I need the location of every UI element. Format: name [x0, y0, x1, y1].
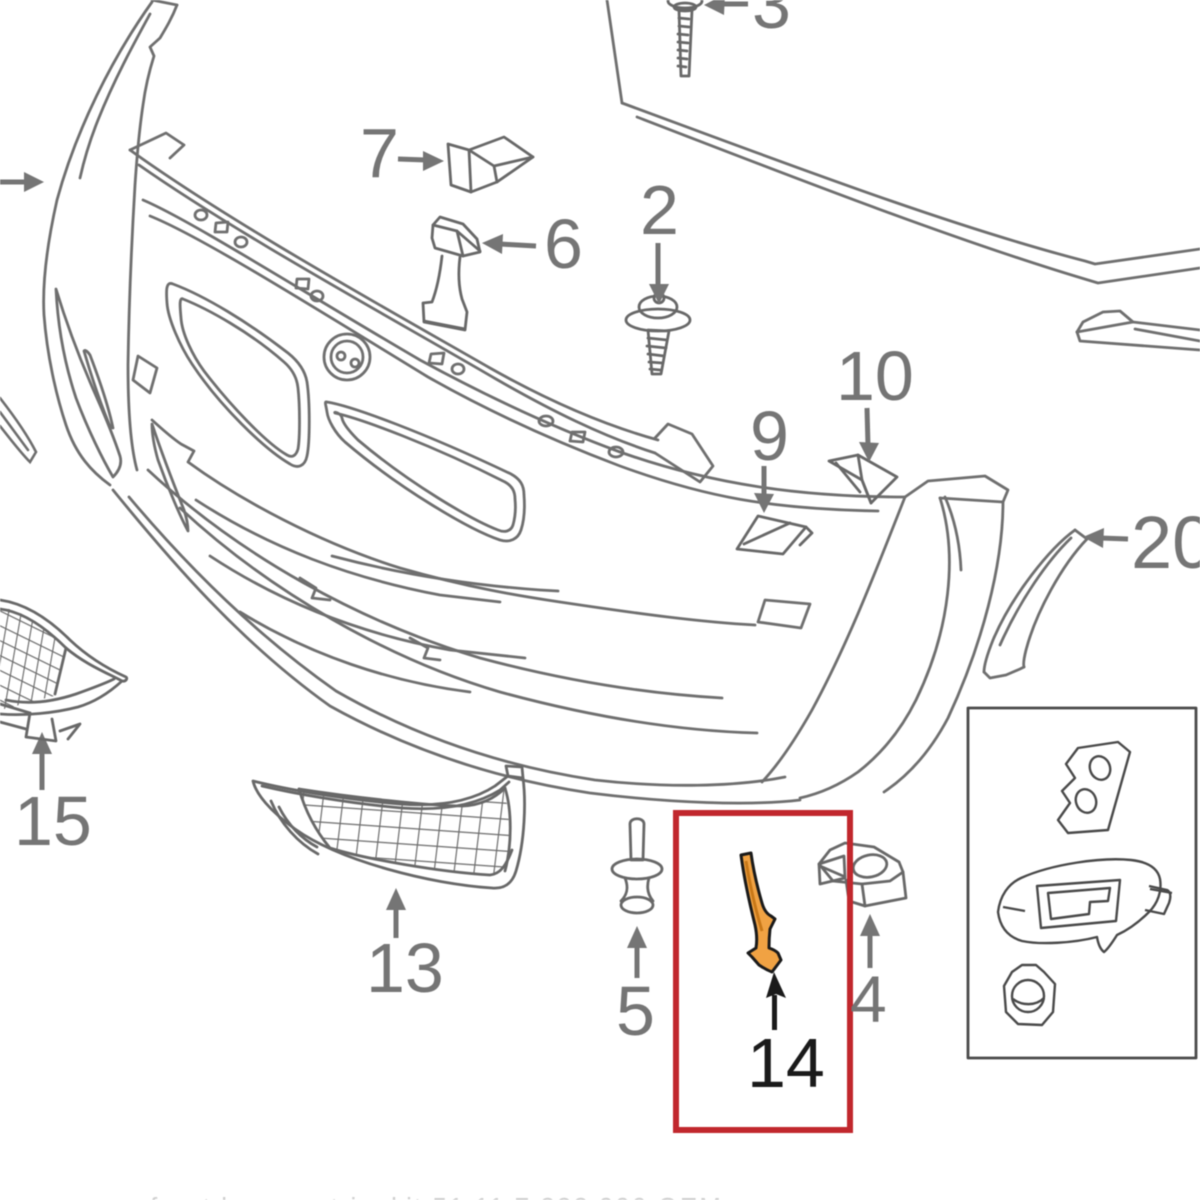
svg-text:13: 13: [366, 929, 444, 1007]
svg-text:6: 6: [544, 205, 583, 283]
svg-text:5: 5: [616, 972, 655, 1050]
svg-text:10: 10: [836, 337, 914, 415]
svg-text:7: 7: [360, 114, 399, 192]
svg-text:15: 15: [14, 782, 92, 860]
svg-text:3: 3: [752, 0, 791, 43]
svg-text:14: 14: [747, 1024, 825, 1102]
svg-text:front bumper trim kit 51 11 7: front bumper trim kit 51 11 7 332 990 OE…: [150, 1192, 723, 1200]
svg-text:2: 2: [640, 171, 679, 249]
svg-text:9: 9: [750, 397, 789, 475]
svg-text:20: 20: [1131, 501, 1200, 584]
svg-text:4: 4: [850, 962, 887, 1036]
